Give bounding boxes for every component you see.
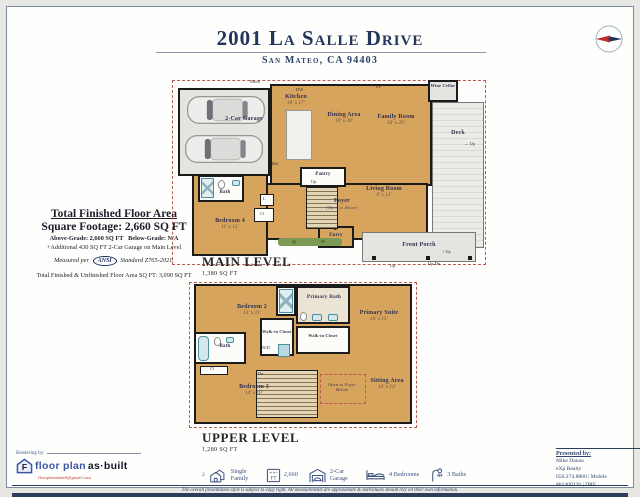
above-grade: Above-Grade: 2,660 SQ FT xyxy=(50,235,124,242)
washer-dryer xyxy=(278,344,290,357)
upper-bath-label: Bath xyxy=(210,344,240,350)
summary-bedrooms: 4 Bedrooms xyxy=(365,468,419,482)
svg-text:FT: FT xyxy=(270,475,277,481)
page-title: 2001 La Salle Drive xyxy=(6,26,634,51)
dw-tag: DW xyxy=(296,88,303,92)
bedroom2-label: Bedroom 213' x 11' xyxy=(226,304,278,316)
shower-stall xyxy=(279,289,293,313)
main-level-title: MAIN LEVEL 1,380 SQ FT xyxy=(202,254,291,277)
dining-label: Dining Area10' x 20' xyxy=(324,112,364,124)
porch-post xyxy=(426,256,430,260)
ansi-logo: ANSI xyxy=(93,256,117,266)
open-to-foyer-label: Open to Foyer Below xyxy=(322,382,362,392)
bathtub xyxy=(198,336,209,361)
toilet xyxy=(218,180,225,189)
garage-label: 2-Car Garage xyxy=(220,116,268,123)
garage-icon xyxy=(308,468,327,483)
fireplace-tag: FP xyxy=(376,85,381,89)
deck-area xyxy=(432,102,484,248)
summary-single-family: 2 Single Family xyxy=(202,468,256,483)
porch-updn-tag: Up Dn xyxy=(428,262,448,266)
sink xyxy=(226,337,234,343)
area-title-2: Square Footage: 2,660 SQ FT xyxy=(28,221,200,233)
pantry-label: Pantry xyxy=(302,172,344,178)
upper-level-title: UPPER LEVEL 1,280 SQ FT xyxy=(202,430,299,453)
porch-post xyxy=(372,256,376,260)
main-level-plan: 2-Car Garage Kitchen10' x 17' Dining Are… xyxy=(176,80,486,272)
total-area-line: Total Finished & Unfinished Floor Area S… xyxy=(28,272,200,279)
wd-tag: W/D xyxy=(262,346,270,350)
house-icon xyxy=(208,468,228,483)
sink xyxy=(312,314,322,321)
flyer-page: 2001 La Salle Drive San Mateo, CA 94403 … xyxy=(0,0,640,494)
area-summary: Total Finished Floor Area Square Footage… xyxy=(28,208,200,279)
upper-closet-tag: Cl xyxy=(210,367,214,371)
toilet xyxy=(300,312,307,321)
ref-tag: Ref xyxy=(272,162,278,166)
linen-tag: L xyxy=(263,197,265,201)
wine-cellar-label: Wine Cellar xyxy=(428,83,458,88)
deck-up-tag: → Up xyxy=(464,142,475,146)
main-bath-label: Bath xyxy=(210,190,240,196)
deck-up-bottom-tag: ↑ Up xyxy=(442,250,451,254)
presented-by-block: Presented by: Mike Danao eXp Realty 650.… xyxy=(556,448,640,489)
porch-up-tag: Up xyxy=(390,264,395,268)
front-porch-label: Front Porch xyxy=(382,242,456,249)
svg-text:F: F xyxy=(22,462,27,472)
upper-level-plan: Bedroom 213' x 11' Primary Bath Primary … xyxy=(192,282,420,430)
additional-garage: +Additional 430 SQ FT 2-Car Garage on Ma… xyxy=(28,244,200,251)
porch-post xyxy=(468,256,472,260)
below-grade: Below-Grade: N/A xyxy=(128,235,178,242)
walkin-closet-2-label: Walk-in Closet xyxy=(304,334,342,339)
area-title-1: Total Finished Floor Area xyxy=(28,208,200,220)
summary-square-footage: FT 2,660 xyxy=(266,468,298,483)
car-icon xyxy=(184,131,264,167)
main-bath-room xyxy=(198,175,244,202)
brand-as-built: as·built xyxy=(88,460,128,472)
living-room-label: Living Room9' x 12' xyxy=(360,186,408,198)
stairs-dn-tag: Dn xyxy=(258,372,263,376)
primary-bath-label: Primary Bath xyxy=(304,294,344,300)
family-room-label: Family Room16' x 20' xyxy=(368,114,424,126)
measured-suffix: Standard Z765-2021. xyxy=(120,257,174,264)
agent-company: eXp Realty xyxy=(556,465,640,473)
compass-icon xyxy=(592,22,626,56)
brand-floor-plan: floor plan xyxy=(35,460,86,472)
measured-prefix: Measured per xyxy=(54,257,89,264)
agent-name: Mike Danao xyxy=(556,457,640,465)
sqft-icon: FT xyxy=(266,468,281,483)
closet-tag: Cl xyxy=(260,212,264,216)
upper-shower-room xyxy=(276,286,296,316)
summary-baths: 3 Baths xyxy=(429,468,466,483)
bed-icon xyxy=(365,468,386,482)
foyer-label: Foyer(Open to Above) xyxy=(320,198,364,210)
primary-bath-room xyxy=(296,286,350,324)
bedroom3-label: Bedroom 314' x 10' xyxy=(226,384,282,396)
kitchen-label: Kitchen10' x 17' xyxy=(274,94,318,106)
sink xyxy=(232,180,240,186)
sink xyxy=(328,314,338,321)
divider-line xyxy=(47,453,141,454)
walkin-closet-2 xyxy=(296,326,350,354)
agent-phone: 650.274.8860 | Mobile xyxy=(556,473,640,481)
walkin-closet-1-label: Walk-in Closet xyxy=(262,330,292,335)
mech-tag: Mech xyxy=(250,80,260,84)
rendering-email: floorplanasbuilt@gmail.com xyxy=(38,475,141,480)
stairs-up-tag: Up xyxy=(311,180,316,184)
rendering-by-label: Rendering by: xyxy=(16,451,44,456)
rendering-by-block: Rendering by: F floor plan as·built floo… xyxy=(16,451,141,480)
page-subtitle: San Mateo, CA 94403 xyxy=(6,55,634,66)
sitting-area-label: Sitting Area10' x 13' xyxy=(364,378,410,390)
story-count: 2 xyxy=(202,472,205,478)
bath-icon xyxy=(429,468,444,483)
hall-closet xyxy=(200,366,228,375)
kitchen-island xyxy=(286,110,312,160)
deck-label: Deck xyxy=(434,130,482,137)
primary-suite-label: Primary Suite14' x 15' xyxy=(350,310,408,322)
summary-garage: 2-Car Garage xyxy=(308,468,355,483)
bedroom4-closet xyxy=(254,208,274,222)
disclaimer-text: The overall presentation style is subjec… xyxy=(12,485,628,493)
entry-label: ▲Entry xyxy=(320,233,352,239)
hedge xyxy=(278,238,342,246)
title-divider xyxy=(156,52,486,53)
floorplan-logo-icon: F xyxy=(16,458,33,474)
bedroom4-label: Bedroom 411' x 12' xyxy=(204,218,256,230)
